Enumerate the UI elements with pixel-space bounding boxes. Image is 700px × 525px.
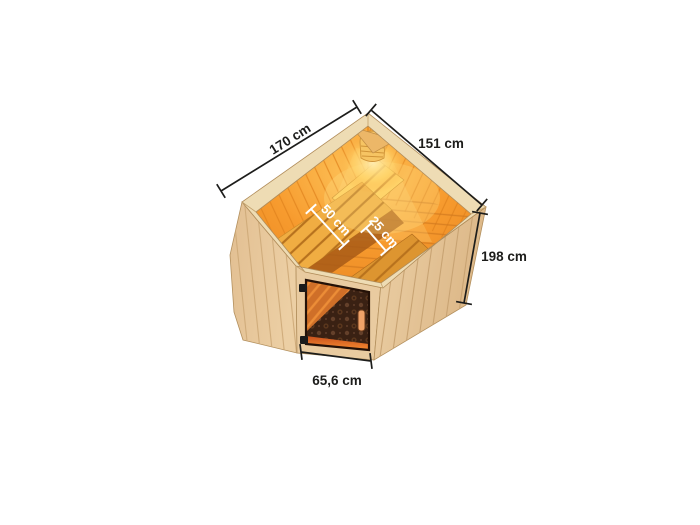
door-hinge-top bbox=[299, 284, 307, 292]
door-handle bbox=[358, 310, 365, 331]
sauna-door bbox=[299, 280, 369, 350]
sauna-product-figure: 170 cm 151 cm 198 cm 65,6 cm 50 cm 25 cm bbox=[0, 0, 700, 525]
dim-label-151: 151 cm bbox=[418, 136, 464, 151]
dim-label-198: 198 cm bbox=[481, 249, 527, 264]
dim-label-656: 65,6 cm bbox=[312, 373, 362, 388]
product-image-canvas: 170 cm 151 cm 198 cm 65,6 cm 50 cm 25 cm bbox=[0, 0, 700, 525]
door-hinge-bottom bbox=[300, 336, 308, 344]
